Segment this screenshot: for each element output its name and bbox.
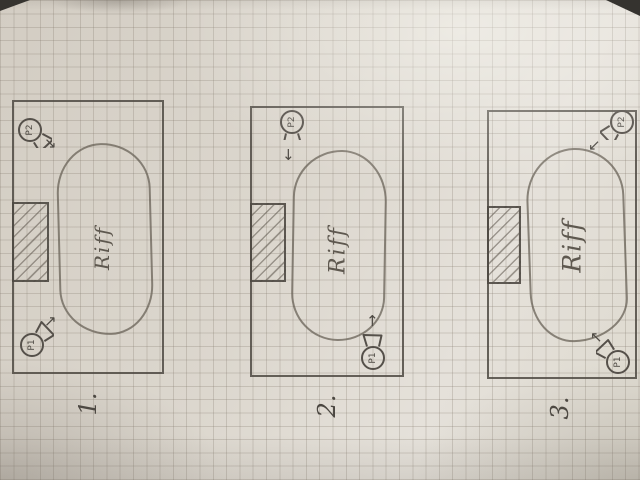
player-label: P2: [616, 100, 628, 144]
player-label: P1: [26, 323, 38, 367]
player2-marker: P2: [270, 96, 314, 140]
player-label: P2: [24, 108, 36, 152]
riff-zone-label: Riff: [558, 219, 587, 272]
obstacle-block: [487, 206, 521, 284]
player2-direction-arrow-icon: ↘: [44, 134, 57, 152]
diagram-number: 3.: [546, 397, 574, 420]
player-label: P1: [367, 336, 379, 380]
riff-zone-label: Riff: [90, 226, 114, 270]
obstacle-block: [12, 202, 49, 282]
player2-direction-arrow-icon: ↙: [588, 136, 601, 154]
player2-marker: P2: [600, 96, 640, 140]
player1-marker: P1: [596, 336, 640, 380]
player1-direction-arrow-icon: ↗: [44, 312, 57, 330]
riff-zone-label: Riff: [326, 226, 351, 274]
player1-marker: P1: [351, 332, 395, 376]
diagram-number: 1.: [74, 393, 102, 416]
photo-background-corner-right: [606, 0, 640, 16]
player-label: P1: [612, 340, 624, 384]
photo-background-corner-left: [0, 0, 30, 11]
player2-direction-arrow-icon: ↓: [282, 146, 295, 164]
player1-direction-arrow-icon: ↑: [366, 312, 379, 330]
obstacle-block: [250, 203, 286, 282]
sketch-photo: Riff P2 ↘ P1 ↗ 1.: [0, 0, 640, 480]
diagram-number: 2.: [313, 395, 341, 418]
player-label: P2: [286, 100, 298, 144]
player1-direction-arrow-icon: ↖: [590, 328, 603, 346]
